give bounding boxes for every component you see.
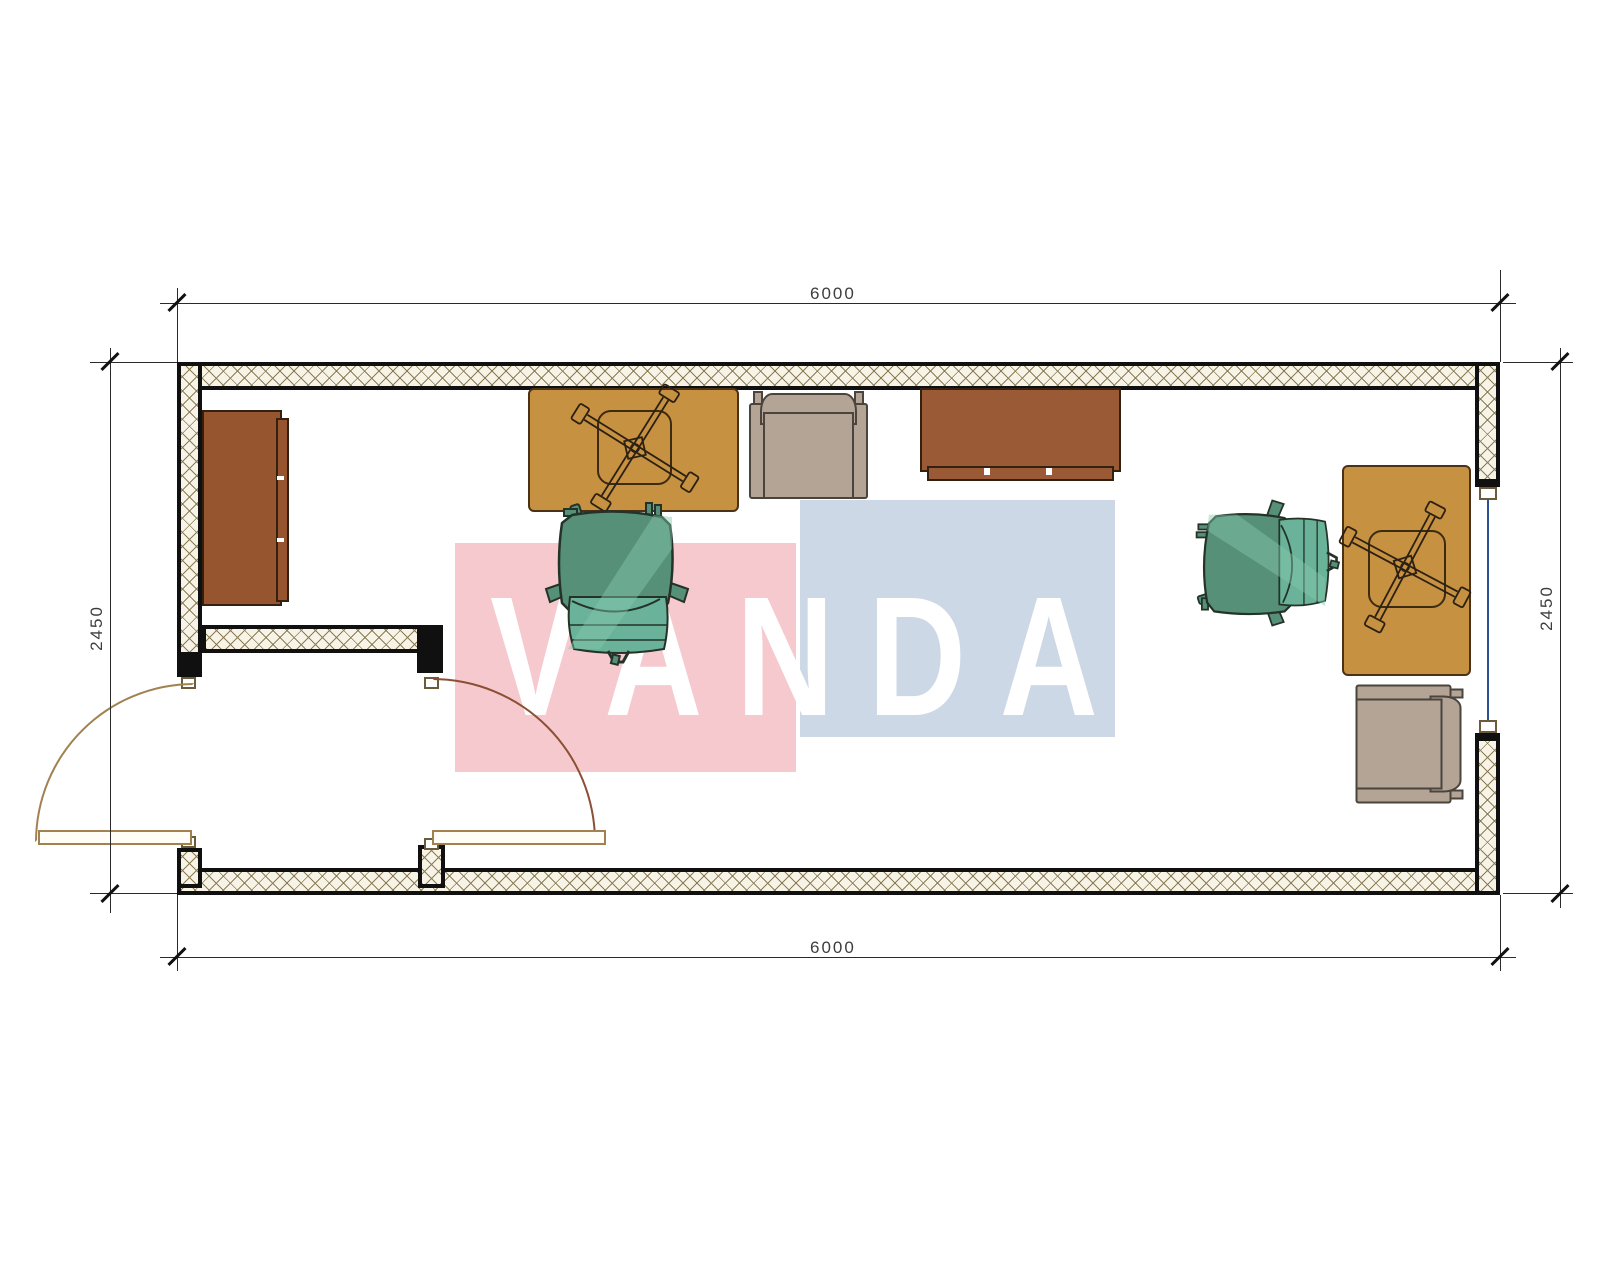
dim-ext-bottom-right [1500,895,1501,971]
office-chair-icon [1197,497,1338,629]
sideboard-left [202,410,282,606]
office-chair-center [542,503,692,663]
sideboard-left-doors [276,418,289,602]
door-swing-arc-left [35,683,194,842]
wall-right-lower [1475,733,1500,895]
dim-label-right: 2450 [1537,585,1557,631]
task-chair-base-icon [1325,487,1485,647]
desk-right [1342,465,1471,676]
dim-ext-bottom-left [177,895,178,971]
sideboard-top-door-gap [1046,468,1052,475]
wall-bottom [177,868,1500,895]
wall-right-lower-cap [1475,733,1500,741]
armchair-right [1358,684,1470,801]
dim-ext-left-bottom [90,893,177,894]
window-jamb-bottom [1479,720,1497,733]
armchair-top [748,385,865,497]
sideboard-left-door-gap [277,476,284,480]
wall-bottom-stub-right [418,845,445,888]
floor-plan-canvas: VANDA [0,0,1600,1280]
sideboard-top-doors [927,466,1114,481]
dim-line-left [110,348,111,913]
partition-end-cap [417,625,443,673]
dim-line-right [1560,348,1561,908]
armchair-seat [763,412,854,499]
door-leaf-left [38,830,192,845]
window-glazing-line [1487,500,1489,720]
wall-left [177,362,202,677]
armchair-seat [1356,699,1443,790]
dim-label-top: 6000 [810,284,856,304]
dim-label-bottom: 6000 [810,938,856,958]
door-leaf-right [432,830,606,845]
dim-label-left: 2450 [87,605,107,651]
dim-ext-top-right [1500,270,1501,362]
sideboard-top-door-gap [984,468,990,475]
sideboard-left-door-gap [277,538,284,542]
office-chair-icon [542,503,692,663]
wall-right-upper-cap [1475,479,1500,487]
sideboard-top [920,388,1121,472]
office-chair-right [1197,497,1338,629]
wall-left-end-cap [177,652,202,677]
wall-bottom-stub-left [177,848,202,888]
dim-ext-right-bottom [1503,893,1573,894]
desk-left [528,388,739,512]
dim-ext-left-top [90,362,177,363]
wall-right-upper [1475,362,1500,487]
wall-vestibule-partition [202,625,443,653]
dim-ext-right-top [1503,362,1573,363]
